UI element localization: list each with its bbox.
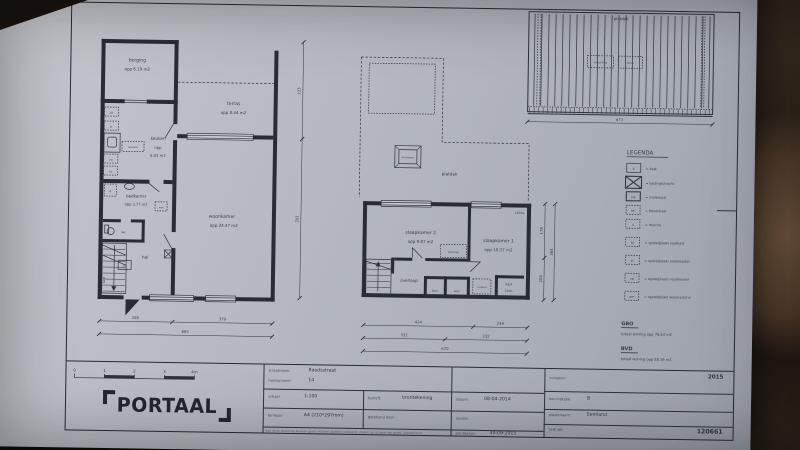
label-sill-bottom: 1500-	[505, 289, 513, 293]
housing-type-label: woningtype:	[549, 397, 571, 401]
portaal-logo: PORTAAL	[92, 386, 243, 426]
room-area-woonkamer: opp 24.47 m2	[210, 223, 238, 228]
format-label: formaat	[268, 414, 282, 418]
flat-roof-outline	[359, 57, 530, 202]
label-roof-vent1: ontluchting	[594, 61, 608, 64]
legend-sym-3: bk	[631, 209, 635, 213]
scalebar-1: 1	[103, 368, 106, 373]
staircase-ground	[102, 243, 127, 293]
logo-bracket-bottom-right	[219, 408, 231, 422]
legend-text-1: = leidingschacht	[645, 181, 674, 185]
number-value: 14	[308, 378, 314, 383]
label-lichtkoepel: lichtkoepel	[402, 156, 414, 159]
legend-text-7: = opstelplaats vaatwasser	[644, 277, 690, 282]
dimension-ticks	[97, 37, 716, 359]
logo-bracket-top-left	[103, 390, 115, 404]
label-platdak-roof: platdak	[614, 16, 630, 21]
label-roof-vent2: afvoer	[627, 62, 635, 65]
dim-first-w3: 332	[400, 332, 408, 337]
legend-item: kt = opstelplaats kooktoestel	[625, 255, 689, 265]
room-label-hal: hal	[142, 255, 148, 260]
photo-of-floorplan: berging opp 6.19 m2 terras opp 8.44 m2 k…	[0, 0, 800, 450]
totals: GBO totaal woning opp 78.63 m2 BVD totaa…	[621, 321, 672, 362]
legend-text-2: = meterkast	[645, 195, 667, 199]
legend-sym-8: wm	[629, 295, 635, 299]
place-value: Eemland	[587, 413, 607, 418]
dim-ground-w1: 269	[132, 315, 140, 320]
room-area-berging: opp 6.19 m2	[124, 66, 150, 71]
legend-sym-5: kk	[631, 241, 635, 245]
legend-text-0: = kast	[646, 167, 658, 171]
dim-ground-w2: 379	[219, 316, 227, 321]
windows	[150, 133, 254, 303]
print-date-label: printdatum	[456, 431, 476, 435]
legend: LEGENDA k = kast = leidingschacht	[624, 150, 737, 302]
room-label-badkamer: badkamer	[126, 193, 147, 198]
legend-text-5: = opstelplaats koelkast	[645, 241, 685, 246]
vhe-value: 120661	[697, 428, 723, 435]
fixture-wm: wm	[159, 206, 164, 209]
logo-word: PORTAAL	[117, 394, 218, 418]
scalebar-2: 2	[133, 368, 136, 373]
legend-item: vw = opstelplaats vaatwasser	[625, 273, 690, 283]
street-label: straatnaam:	[268, 369, 290, 373]
room-area-terras: opp 8.44 m2	[221, 110, 247, 115]
room-area-badkamer: opp 3.77 m2	[125, 202, 148, 206]
dim-first-w2: 239	[497, 321, 505, 326]
room-label-kast: kast	[102, 276, 106, 283]
scale-label: schaal	[268, 395, 280, 399]
scalebar-3: 3	[163, 369, 166, 374]
front-door	[125, 299, 139, 315]
legend-sym-2: mk	[631, 195, 636, 199]
complex-value: 2015	[708, 375, 724, 381]
dim-first-h1: 178	[539, 227, 544, 235]
room-label-keuken: keuken	[151, 136, 166, 141]
legend-text-8: = opstelplaats wasmachine	[644, 295, 691, 300]
label-vlizotrap: vlizotrap	[448, 250, 460, 254]
date-label: datum:	[456, 398, 469, 402]
label-platdak-first: platdak	[442, 171, 458, 176]
legend-item: mk = meterkast	[626, 192, 667, 202]
street-value: Raadsstraat	[308, 368, 336, 373]
legend-text-6: = opstelplaats kooktoestel	[644, 259, 689, 264]
legend-sym-6: kt	[631, 259, 635, 263]
dim-ground-h1: 223	[296, 87, 301, 95]
subject-label: betreft:	[368, 396, 381, 400]
legend-item: bk = bovenkast	[626, 205, 667, 215]
staircase-first	[366, 259, 392, 295]
duct-leidingschacht	[164, 250, 172, 258]
revision-label: revisie:	[456, 417, 469, 421]
dim-first-w4: 332	[482, 333, 490, 338]
print-date-value: 30-09-2015	[490, 431, 517, 436]
gbo-text: totaal woning opp 78.63 m2	[621, 332, 672, 337]
room-label-berging: berging	[129, 57, 146, 63]
legend-text-3: = bovenkast	[645, 209, 667, 213]
fixture-kt: kt	[110, 125, 113, 129]
title-block: 0 1 2 3 4m PORTAAL straatnaam: Raadsstra…	[66, 360, 734, 440]
number-label: huisnummer	[268, 379, 291, 383]
dim-first-h2: 206	[538, 275, 543, 283]
label-kast1: kast	[432, 289, 439, 293]
legend-item: d = douche	[626, 219, 662, 229]
complex-label: complex:	[549, 376, 566, 380]
label-kast3: kast	[506, 282, 513, 286]
fixture-d: d	[109, 189, 111, 193]
scalebar-4: 4m	[191, 369, 198, 374]
kitchen-fixtures	[104, 107, 145, 176]
dim-first-htotal: 384	[549, 248, 554, 256]
label-cv: cv-ketel	[477, 286, 487, 289]
legend-item: k = kast	[627, 163, 658, 172]
legend-title: LEGENDA	[627, 150, 654, 156]
room-label-terras: terras	[227, 101, 241, 107]
scale-value: 1:100	[304, 394, 317, 399]
legend-item: = leidingschacht	[625, 176, 674, 189]
housing-type-value: B	[587, 397, 590, 402]
scale-bar: 0 1 2 3 4m	[70, 365, 240, 384]
legend-sym-0: k	[633, 167, 635, 171]
scalebar-0: 0	[73, 368, 76, 373]
walls	[98, 39, 279, 302]
room-label-overloop: overloop	[400, 278, 418, 283]
fixture-kk: kk	[109, 170, 113, 174]
fixture-vw: vw	[109, 159, 114, 162]
place-label: plaatsnaam:	[549, 413, 571, 417]
room-area-slaapkamer1: opp 10.37 m2	[484, 247, 512, 252]
fixture-bk: bk	[110, 111, 114, 115]
dim-ground-total: 665	[181, 329, 189, 334]
dim-first-total: 670	[441, 346, 449, 351]
room-label-slaapkamer1: slaapkamer 1	[483, 238, 514, 244]
legend-sym-7: vw	[630, 277, 635, 281]
fixture-mk: mk	[123, 264, 128, 268]
architectural-drawing: berging opp 6.19 m2 terras opp 8.44 m2 k…	[67, 2, 740, 370]
label-sill-top: 1500+	[515, 211, 526, 215]
subject-value: brontekening	[402, 396, 432, 401]
drawing-frame: berging opp 6.19 m2 terras opp 8.44 m2 k…	[65, 1, 741, 440]
legend-item: wm = opstelplaats wasmachine	[625, 291, 691, 301]
vhe-label: VHE-NR:	[549, 428, 564, 432]
paper-sheet: berging opp 6.19 m2 terras opp 8.44 m2 k…	[0, 0, 758, 450]
legend-sym-4: d	[632, 223, 634, 227]
legend-text-4: = douche	[645, 223, 661, 227]
gbo-title: GBO	[621, 321, 633, 327]
label-kast2: kast	[454, 289, 461, 293]
dim-ground-h2: 291	[294, 215, 299, 223]
room-label-woonkamer: woonkamer	[209, 214, 236, 220]
room-area-slaapkamer2: opp 9.87 m2	[408, 239, 434, 244]
drawn-by-label: getekend door:	[368, 415, 395, 419]
fixture-aanrecht: aanrecht	[128, 146, 138, 149]
dim-first-w1: 424	[415, 319, 423, 324]
roof-boarding-lines	[534, 14, 710, 109]
bvd-title: BVD	[621, 346, 633, 352]
room-area-keuken-2: 6.03 m2	[150, 153, 166, 158]
dim-roof: 673	[616, 118, 623, 122]
room-area-keuken-1: opp	[154, 145, 162, 150]
room-label-wc: wc	[121, 230, 126, 234]
format-value: A4 (210*297mm)	[304, 413, 344, 419]
roof-plan: platdak ontluchting afvoer 673	[527, 12, 714, 125]
legend-item: kk = opstelplaats koelkast	[626, 237, 686, 247]
room-label-slaapkamer2: slaapkamer 2	[405, 230, 436, 236]
ground-floor-plan: berging opp 6.19 m2 terras opp 8.44 m2 k…	[97, 39, 304, 337]
bvd-text: totaal woning opp 88.16 m2	[621, 357, 672, 362]
date-value: 08-04-2014	[484, 397, 511, 402]
